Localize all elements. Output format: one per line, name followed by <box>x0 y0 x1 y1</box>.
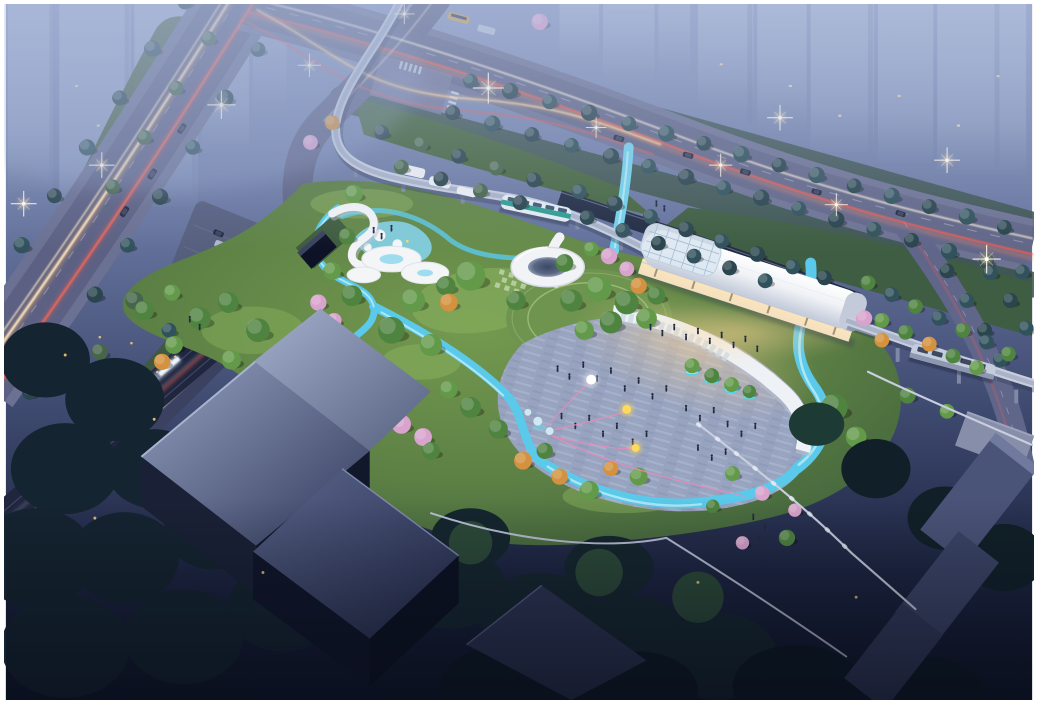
rendering-frame <box>0 0 1038 704</box>
bottom-vignette <box>6 498 1032 700</box>
aerial-rendering <box>4 4 1034 700</box>
